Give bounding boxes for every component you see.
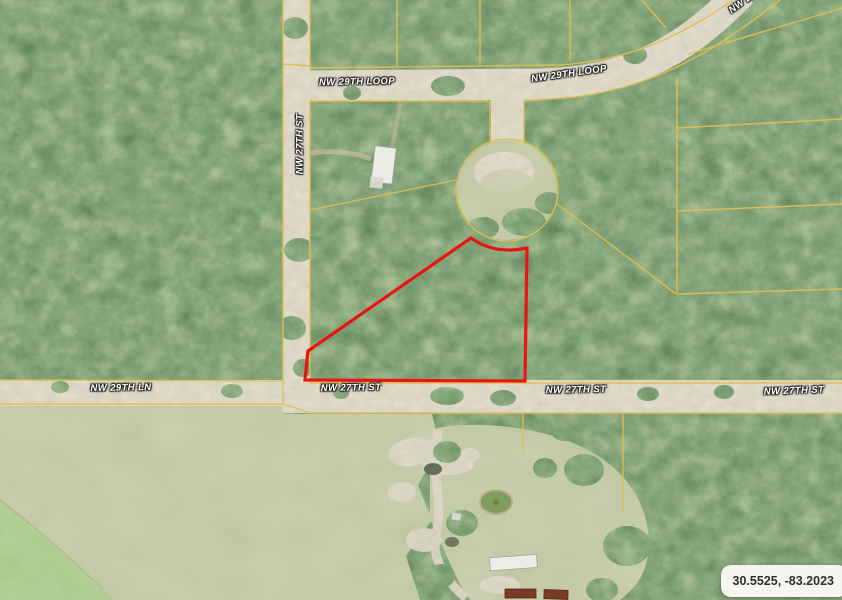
road-culdesac-stub: [491, 96, 524, 144]
coordinates-badge: 30.5525, -83.2023: [721, 565, 842, 597]
aerial-map: NW 29TH LOOP NW 29TH LOOP NW 29TH LOOP N…: [0, 0, 842, 600]
map-canvas: [0, 0, 842, 600]
brown-shed-1: [505, 589, 536, 598]
brown-shed-2: [544, 590, 568, 600]
road-nw-27th-st-vertical: [283, 0, 310, 413]
coordinates-text: 30.5525, -83.2023: [733, 574, 834, 588]
